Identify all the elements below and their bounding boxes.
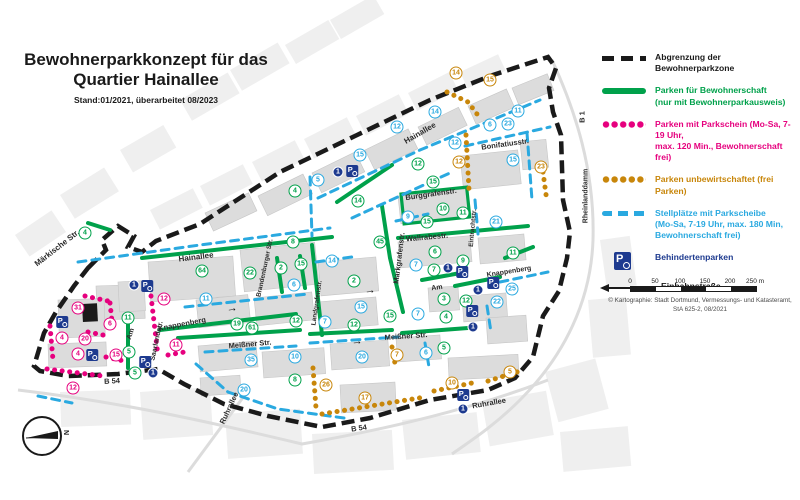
disabled-parking-icon: P [466, 305, 478, 317]
legend-label: Behindertenparken [655, 252, 733, 263]
resident-count-marker: 15 [421, 216, 434, 229]
free-count-marker: 10 [446, 377, 459, 390]
disc-count-marker: 7 [412, 308, 425, 321]
disc-count-marker: 14 [429, 106, 442, 119]
resident-count-marker: 11 [122, 312, 135, 325]
resident-count-marker: 19 [231, 318, 244, 331]
disc-count-marker: 23 [502, 118, 515, 131]
resident-count-marker: 5 [129, 367, 142, 380]
legend-swatch-dashblack [602, 56, 646, 61]
disabled-count-marker: 1 [129, 280, 140, 291]
legend-label: Parken für Bewohnerschaft(nur mit Bewohn… [655, 85, 785, 107]
resident-count-marker: 3 [438, 293, 451, 306]
resident-count-marker: 15 [384, 310, 397, 323]
one-way-arrow-icon: → [364, 285, 376, 297]
scale-tick: 100 [675, 278, 686, 285]
legend: Abgrenzung der BewohnerparkzoneParken fü… [602, 52, 798, 303]
scale-tick: 0 [628, 278, 632, 285]
free-count-marker: 12 [453, 156, 466, 169]
disabled-parking-icon: P [614, 252, 631, 270]
disc-count-marker: 5 [312, 174, 325, 187]
resident-count-marker: 14 [352, 195, 365, 208]
free-count-marker: 7 [391, 349, 404, 362]
payed-count-marker: 4 [56, 332, 69, 345]
legend-item-linegreen: Parken für Bewohnerschaft(nur mit Bewohn… [602, 85, 798, 107]
disabled-parking-icon: P [56, 316, 68, 328]
disc-count-marker: 20 [356, 351, 369, 364]
disc-count-marker: 6 [484, 119, 497, 132]
disc-count-marker: 11 [200, 293, 213, 306]
resident-count-marker: 2 [348, 275, 361, 288]
legend-swatch-dotspink [602, 121, 646, 128]
free-count-marker: 17 [359, 392, 372, 405]
scale-tick: 150 [700, 278, 711, 285]
copyright-line2: StA 625-2, 08/2021 [673, 306, 727, 313]
disc-count-marker: 12 [449, 137, 462, 150]
one-way-arrow-icon: → [351, 336, 363, 348]
legend-swatch-linegreen [602, 88, 646, 94]
free-count-marker: 5 [504, 366, 517, 379]
resident-count-marker: 12 [290, 315, 303, 328]
payed-count-marker: 6 [104, 318, 117, 331]
legend-label: Parken unbewirtschaftet (frei Parken) [655, 174, 798, 196]
disc-count-marker: 11 [512, 105, 525, 118]
disabled-parking-icon: P [86, 349, 98, 361]
free-count-marker: 14 [450, 67, 463, 80]
legend-item-dashblack: Abgrenzung der Bewohnerparkzone [602, 52, 798, 74]
street-label: B 1 [578, 111, 587, 123]
disc-count-marker: 12 [391, 121, 404, 134]
resident-count-marker: 12 [412, 158, 425, 171]
disabled-count-marker: 1 [473, 285, 484, 296]
disc-count-marker: 22 [491, 296, 504, 309]
disc-count-marker: 21 [490, 216, 503, 229]
resident-count-marker: 4 [289, 185, 302, 198]
copyright-line1: © Kartographie: Stadt Dortmund, Vermessu… [608, 297, 792, 304]
legend-swatch-dotsorange [602, 176, 646, 183]
legend-label: Abgrenzung der Bewohnerparkzone [655, 52, 798, 74]
payed-count-marker: 12 [67, 382, 80, 395]
map-title-status: Stand:01/2021, überarbeitet 08/2023 [6, 95, 286, 105]
payed-count-marker: 15 [110, 349, 123, 362]
resident-count-marker: 4 [440, 311, 453, 324]
copyright-note: © Kartographie: Stadt Dortmund, Vermessu… [600, 296, 800, 314]
disc-count-marker: 10 [289, 351, 302, 364]
resident-count-marker: 4 [79, 227, 92, 240]
scale-tick: 50 [651, 278, 658, 285]
disc-count-marker: 14 [326, 255, 339, 268]
disc-count-marker: 7 [319, 316, 332, 329]
resident-count-marker: 6 [429, 246, 442, 259]
resident-count-marker: 11 [457, 207, 470, 220]
resident-count-marker: 10 [437, 203, 450, 216]
free-count-marker: 15 [484, 74, 497, 87]
disabled-parking-icon: P [457, 389, 469, 401]
payed-count-marker: 20 [79, 333, 92, 346]
payed-count-marker: 11 [170, 339, 183, 352]
resident-count-marker: 64 [196, 265, 209, 278]
free-count-marker: 26 [320, 379, 333, 392]
compass-north-label: N [62, 430, 69, 435]
disc-count-marker: 6 [420, 347, 433, 360]
disabled-parking-icon: P [139, 356, 151, 368]
disc-count-marker: 25 [506, 283, 519, 296]
disabled-count-marker: 1 [468, 322, 479, 333]
disabled-parking-icon: P [141, 280, 153, 292]
resident-count-marker: 15 [295, 258, 308, 271]
legend-item-dashblue: Stellplätze mit Parkscheibe(Mo-Sa, 7-19 … [602, 208, 798, 242]
legend-item-picon: PBehindertenparken [602, 252, 798, 270]
disc-count-marker: 6 [288, 279, 301, 292]
resident-count-marker: 22 [244, 267, 257, 280]
scale-tick: 250 m [746, 278, 764, 285]
disabled-count-marker: 1 [333, 167, 344, 178]
disabled-parking-icon: P [487, 277, 499, 289]
map-title-line1: Bewohnerparkkonzept für das [6, 50, 286, 70]
free-count-marker: 23 [535, 161, 548, 174]
scale-ticks: 050100150200250 m [630, 278, 770, 286]
resident-count-marker: 61 [246, 322, 259, 335]
resident-count-marker: 7 [428, 264, 441, 277]
legend-item-dotspink: Parken mit Parkschein (Mo-Sa, 7-19 Uhr,m… [602, 119, 798, 164]
disc-count-marker: 15 [354, 149, 367, 162]
disc-count-marker: 15 [355, 301, 368, 314]
resident-count-marker: 8 [289, 374, 302, 387]
resident-count-marker: 2 [275, 262, 288, 275]
disabled-parking-icon: P [456, 266, 468, 278]
legend-swatch-picon: P [602, 252, 646, 270]
resident-count-marker: 12 [348, 319, 361, 332]
resident-count-marker: 15 [427, 176, 440, 189]
street-label: B 54 [104, 376, 120, 386]
resident-count-marker: 45 [374, 236, 387, 249]
map-title-line2: Quartier Hainallee [6, 70, 286, 90]
disabled-count-marker: 1 [443, 263, 454, 274]
legend-swatch-dashblue [602, 211, 646, 217]
disc-count-marker: 15 [507, 154, 520, 167]
disabled-count-marker: 1 [458, 404, 469, 415]
disabled-parking-icon: P [346, 165, 358, 177]
scale-bar: 050100150200250 m [630, 278, 770, 292]
disc-count-marker: 20 [238, 384, 251, 397]
north-arrow-icon [24, 418, 60, 454]
legend-item-dotsorange: Parken unbewirtschaftet (frei Parken) [602, 174, 798, 196]
disc-count-marker: 7 [410, 259, 423, 272]
resident-count-marker: 5 [123, 346, 136, 359]
disc-count-marker: 35 [245, 354, 258, 367]
street-label: Rheinlanddamm [583, 169, 590, 223]
scale-tick: 200 [725, 278, 736, 285]
resident-count-marker: 11 [507, 247, 520, 260]
legend-label: Parken mit Parkschein (Mo-Sa, 7-19 Uhr,m… [655, 119, 798, 164]
disc-count-marker: 9 [402, 211, 415, 224]
resident-count-marker: 8 [287, 236, 300, 249]
resident-count-marker: 5 [438, 342, 451, 355]
disabled-count-marker: 1 [148, 368, 159, 379]
payed-count-marker: 12 [158, 293, 171, 306]
one-way-arrow-icon: → [226, 303, 238, 315]
legend-label: Stellplätze mit Parkscheibe(Mo-Sa, 7-19 … [655, 208, 783, 242]
payed-count-marker: 4 [72, 348, 85, 361]
map-screenshot: Märkische Str.HainalleeHainalleeBonifati… [0, 0, 800, 500]
north-compass [22, 416, 62, 456]
payed-count-marker: 31 [72, 302, 85, 315]
map-title-block: Bewohnerparkkonzept für das Quartier Hai… [6, 50, 286, 105]
scale-bar-segments [630, 286, 757, 292]
